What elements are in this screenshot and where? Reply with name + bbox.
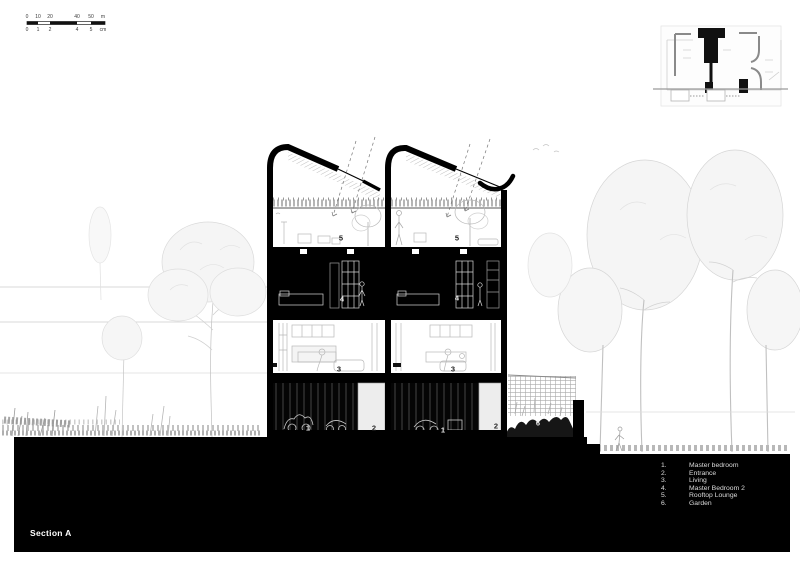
key-plan [653, 20, 788, 115]
legend-item: 2. Entrance [661, 470, 745, 478]
garden [505, 375, 584, 447]
legend-item-label: Rooftop Lounge [689, 492, 737, 500]
trellis-screen [508, 376, 576, 416]
bedroom-bay-2 [391, 257, 501, 310]
scale-label: cm [100, 27, 107, 33]
legend-item-number: 6. [661, 500, 689, 508]
legend-item: 4. Master Bedroom 2 [661, 485, 745, 493]
legend-item-number: 1. [661, 462, 689, 470]
legend-item-label: Garden [689, 500, 712, 508]
scale-label: 50 [88, 14, 94, 20]
building-section [267, 137, 513, 438]
legend-item: 6. Garden [661, 500, 745, 508]
scale-label: 40 [74, 14, 80, 20]
legend-item: 1. Master bedroom [661, 462, 745, 470]
entrance-door-1 [358, 383, 385, 433]
legend-item: 3. Living [661, 477, 745, 485]
scale-label: 0 [26, 14, 29, 20]
bird-marks [533, 145, 559, 153]
legend-item-number: 2. [661, 470, 689, 478]
legend-item-label: Master Bedroom 2 [689, 485, 745, 493]
scale-meter-labels: 010204050m [25, 14, 117, 20]
scale-label: 5 [90, 27, 93, 33]
scale-bar-graphic [25, 21, 109, 26]
architectural-sheet: 010204050m 01245cm [0, 0, 800, 565]
entrance-door-2 [479, 383, 501, 431]
legend-item-number: 4. [661, 485, 689, 493]
scale-bar: 010204050m 01245cm [25, 14, 117, 36]
scale-label: 20 [47, 14, 53, 20]
section-title: Section A [30, 528, 72, 538]
legend-item-label: Living [689, 477, 707, 485]
legend-item-label: Master bedroom [689, 462, 739, 470]
scale-label: 0 [26, 27, 29, 33]
garden-planting [505, 417, 577, 437]
scale-label: m [101, 14, 105, 20]
legend-item-label: Entrance [689, 470, 716, 478]
garden-wall [573, 400, 584, 447]
landscape-left [0, 207, 267, 437]
legend-item: 5. Rooftop Lounge [661, 492, 745, 500]
scale-label: 10 [35, 14, 41, 20]
legend-item-number: 3. [661, 477, 689, 485]
legend: 1. Master bedroom 2. Entrance 3. Living … [661, 462, 745, 508]
scale-label: 2 [49, 27, 52, 33]
legend-item-number: 5. [661, 492, 689, 500]
bedroom-bay-1 [273, 257, 385, 310]
scale-label: 1 [37, 27, 40, 33]
scale-label: 4 [76, 27, 79, 33]
scale-cm-labels: 01245cm [25, 27, 117, 33]
